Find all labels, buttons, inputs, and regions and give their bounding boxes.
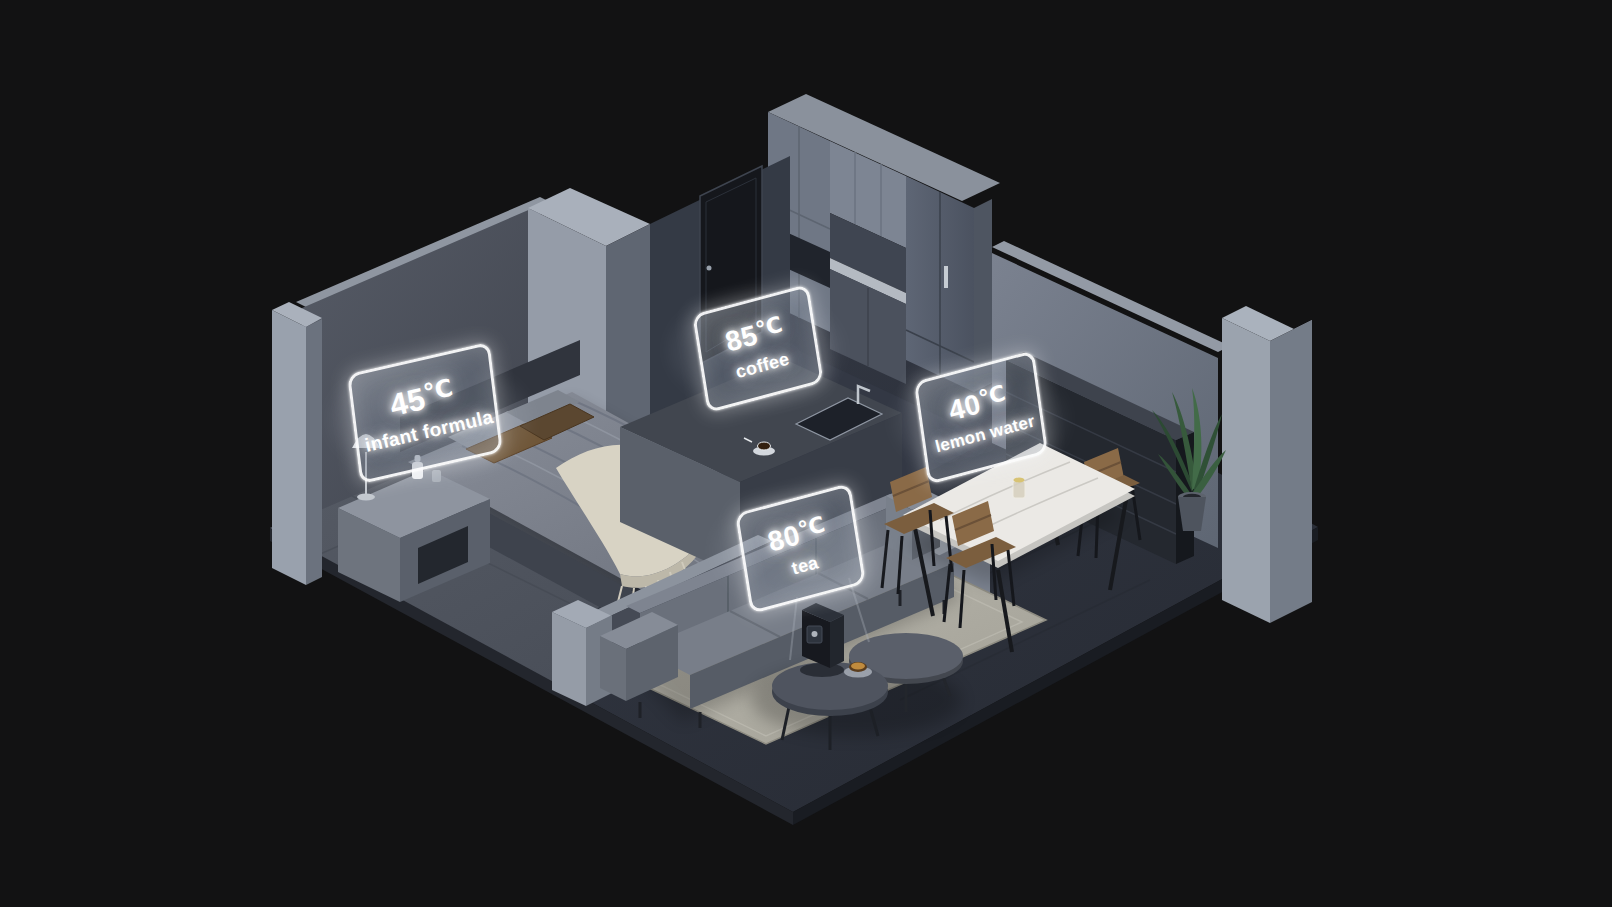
temperature: 80℃ xyxy=(765,514,829,556)
coffee-cup xyxy=(758,442,771,450)
door-handle xyxy=(707,266,712,271)
drink-name: lemon water xyxy=(933,412,1037,458)
temperature: 45℃ xyxy=(387,377,457,422)
lemon-water-glass xyxy=(1013,478,1025,499)
drink-name: infant formula xyxy=(363,406,495,457)
temp-unit: ℃ xyxy=(753,313,784,341)
apartment-3d-render xyxy=(0,0,1612,907)
drink-name: tea xyxy=(789,552,820,579)
fridge xyxy=(906,176,992,392)
hero-image-stage: 45℃ infant formula 85℃ coffee 40℃ lemon … xyxy=(0,0,1612,907)
temp-unit: ℃ xyxy=(977,382,1008,410)
water-dispenser xyxy=(800,603,844,677)
fridge-handle xyxy=(944,266,948,288)
temp-unit: ℃ xyxy=(796,513,827,541)
right-corner-pillar xyxy=(1222,306,1312,623)
left-pillar xyxy=(272,302,322,585)
temp-unit: ℃ xyxy=(421,376,455,406)
